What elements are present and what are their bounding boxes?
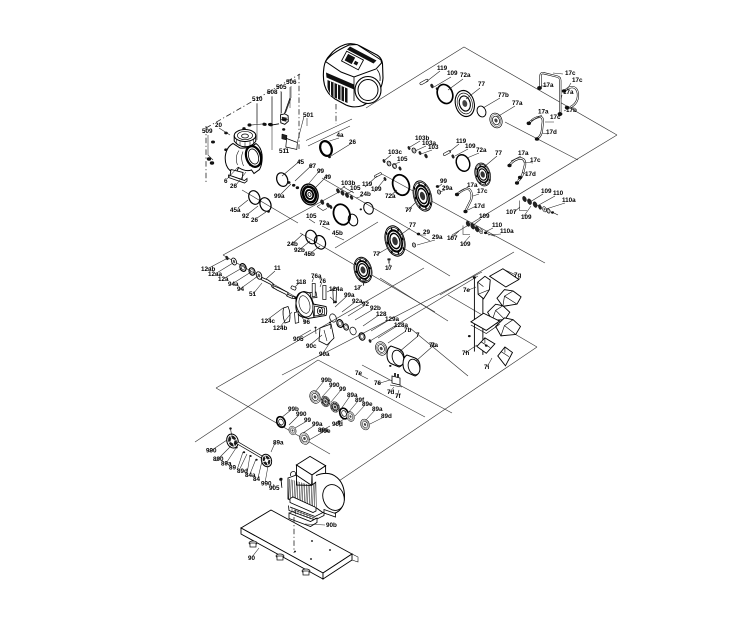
svg-text:109: 109: [465, 143, 476, 150]
svg-text:11: 11: [274, 265, 281, 272]
svg-text:7i: 7i: [484, 364, 490, 371]
svg-text:506: 506: [286, 79, 297, 86]
svg-text:26: 26: [349, 139, 357, 146]
svg-text:17a: 17a: [538, 109, 549, 116]
svg-text:77: 77: [409, 222, 417, 229]
svg-text:501: 501: [303, 112, 314, 119]
svg-text:109: 109: [521, 214, 532, 221]
svg-text:4a: 4a: [337, 132, 345, 139]
svg-text:109: 109: [460, 241, 471, 248]
svg-text:110a: 110a: [500, 228, 514, 235]
svg-text:99: 99: [339, 386, 347, 393]
svg-text:7c: 7c: [429, 342, 437, 349]
svg-text:90: 90: [248, 555, 256, 562]
svg-text:77: 77: [495, 150, 503, 157]
svg-text:99: 99: [440, 178, 448, 185]
svg-text:77a: 77a: [512, 100, 523, 107]
svg-text:511: 511: [279, 148, 290, 155]
svg-text:89: 89: [229, 465, 237, 472]
svg-text:6: 6: [224, 178, 228, 185]
svg-text:17c: 17c: [565, 70, 576, 77]
svg-text:7b: 7b: [404, 327, 412, 334]
svg-text:72a: 72a: [319, 220, 330, 227]
svg-text:107: 107: [506, 209, 517, 216]
svg-text:99e: 99e: [320, 428, 331, 435]
svg-text:84: 84: [253, 476, 261, 483]
svg-text:17d: 17d: [474, 203, 485, 210]
svg-text:118: 118: [296, 279, 307, 286]
svg-text:17a: 17a: [563, 89, 574, 96]
svg-text:72a: 72a: [460, 72, 471, 79]
svg-text:17b: 17b: [566, 107, 577, 114]
svg-text:29a: 29a: [432, 234, 443, 241]
svg-text:510: 510: [252, 96, 263, 103]
svg-text:92: 92: [362, 301, 370, 308]
svg-text:90d: 90d: [332, 421, 343, 428]
svg-text:99: 99: [304, 417, 312, 424]
svg-text:7g: 7g: [514, 272, 522, 279]
svg-text:103: 103: [428, 144, 439, 151]
svg-text:51: 51: [249, 291, 257, 298]
svg-text:76: 76: [319, 278, 327, 285]
svg-text:89d: 89d: [381, 413, 392, 420]
svg-text:89a: 89a: [372, 406, 383, 413]
svg-text:72a: 72a: [385, 193, 396, 200]
svg-text:509: 509: [202, 128, 213, 135]
svg-text:17d: 17d: [546, 129, 557, 136]
svg-text:45b: 45b: [304, 251, 315, 258]
svg-text:17: 17: [385, 265, 393, 272]
svg-text:90a: 90a: [319, 351, 330, 358]
svg-text:45b: 45b: [332, 230, 343, 237]
svg-text:109: 109: [371, 186, 382, 193]
svg-text:17a: 17a: [518, 150, 529, 157]
svg-text:124b: 124b: [273, 325, 288, 332]
svg-text:103c: 103c: [388, 149, 403, 156]
svg-text:107: 107: [447, 235, 458, 242]
svg-text:77: 77: [405, 207, 413, 214]
svg-text:110a: 110a: [562, 197, 576, 204]
svg-text:17c: 17c: [550, 114, 561, 121]
svg-text:72a: 72a: [476, 147, 487, 154]
svg-text:45a: 45a: [230, 207, 241, 214]
svg-text:124a: 124a: [329, 286, 344, 293]
svg-text:99a: 99a: [274, 193, 285, 200]
svg-text:99a: 99a: [312, 421, 323, 428]
svg-text:17a: 17a: [543, 82, 554, 89]
svg-text:90b: 90b: [326, 522, 337, 529]
svg-text:109: 109: [447, 70, 458, 77]
svg-text:77: 77: [478, 81, 486, 88]
svg-text:105: 105: [306, 213, 317, 220]
svg-text:990: 990: [206, 448, 217, 455]
svg-text:20: 20: [215, 122, 223, 129]
svg-text:7: 7: [416, 332, 420, 339]
svg-text:89a: 89a: [273, 440, 284, 447]
svg-text:24b: 24b: [360, 191, 371, 198]
svg-text:94: 94: [237, 286, 245, 293]
svg-text:7f: 7f: [395, 393, 402, 400]
svg-text:17c: 17c: [572, 77, 583, 84]
svg-text:29a: 29a: [442, 185, 453, 192]
svg-text:105: 105: [397, 156, 408, 163]
svg-text:7d: 7d: [387, 389, 395, 396]
svg-text:905: 905: [269, 485, 280, 492]
svg-text:26: 26: [230, 183, 238, 190]
